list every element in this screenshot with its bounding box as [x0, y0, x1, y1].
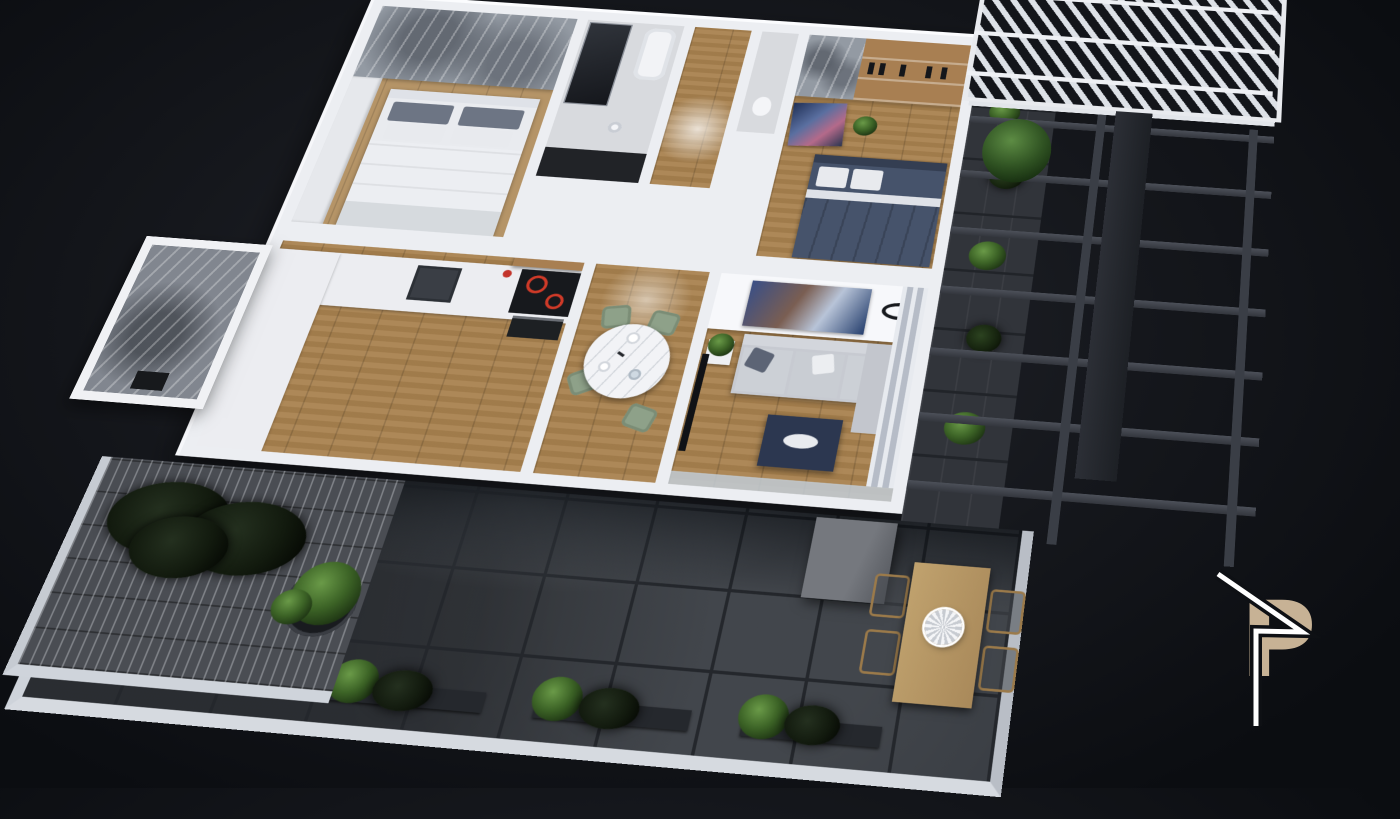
cooktop-ring	[543, 293, 566, 310]
bottle	[878, 63, 886, 75]
outdoor-chair	[977, 645, 1019, 693]
pedestal-sink	[606, 121, 623, 133]
pergola-crossbar	[974, 30, 1275, 54]
woven-bowl	[922, 608, 964, 647]
bowl	[627, 369, 642, 381]
throw-pillow	[812, 354, 834, 375]
logo: P	[1210, 564, 1330, 736]
induction-cooktop	[508, 269, 581, 317]
bottle	[925, 66, 933, 78]
pergola-crossbar	[967, 71, 1273, 96]
pillow	[382, 123, 447, 143]
building-shell	[175, 0, 987, 514]
cutlery	[617, 351, 625, 357]
oven	[506, 316, 564, 341]
plant	[851, 116, 879, 137]
abstract-art	[788, 103, 848, 147]
bottle	[867, 62, 875, 74]
dining-chair	[619, 402, 659, 434]
pillow	[850, 169, 884, 191]
pillow	[387, 101, 455, 124]
outdoor-chair	[985, 589, 1026, 635]
bathtub	[631, 28, 678, 81]
plate	[596, 361, 611, 373]
coffee-table	[757, 414, 844, 471]
dark-tile-strip	[536, 147, 647, 183]
bottle	[899, 64, 907, 76]
outdoor-chair	[868, 573, 910, 619]
bedroom-2-wall	[795, 35, 971, 107]
pillow	[457, 106, 525, 129]
glass-shower	[563, 22, 633, 106]
pillow	[449, 128, 513, 148]
bottle	[940, 67, 948, 79]
double-bed-navy	[792, 154, 948, 267]
pergola-crossbar	[981, 0, 1277, 15]
dark-fixture	[130, 371, 170, 391]
duvet	[792, 197, 940, 267]
render-scene: P	[0, 0, 1400, 788]
pillow	[815, 166, 849, 188]
apartment-floorplan	[0, 0, 1083, 781]
bedroom-1-accent-wall	[353, 6, 578, 90]
toilet	[750, 96, 773, 116]
bedroom-1	[291, 6, 577, 237]
decor-plate	[782, 433, 820, 450]
outdoor-chair	[858, 629, 901, 676]
wall-shelves	[853, 38, 971, 107]
plate	[625, 332, 642, 345]
living-room	[668, 273, 929, 502]
glass-wall	[668, 471, 893, 502]
abstract-art	[742, 280, 872, 334]
climbing-plant	[967, 240, 1008, 271]
cooktop-ring	[524, 275, 550, 294]
